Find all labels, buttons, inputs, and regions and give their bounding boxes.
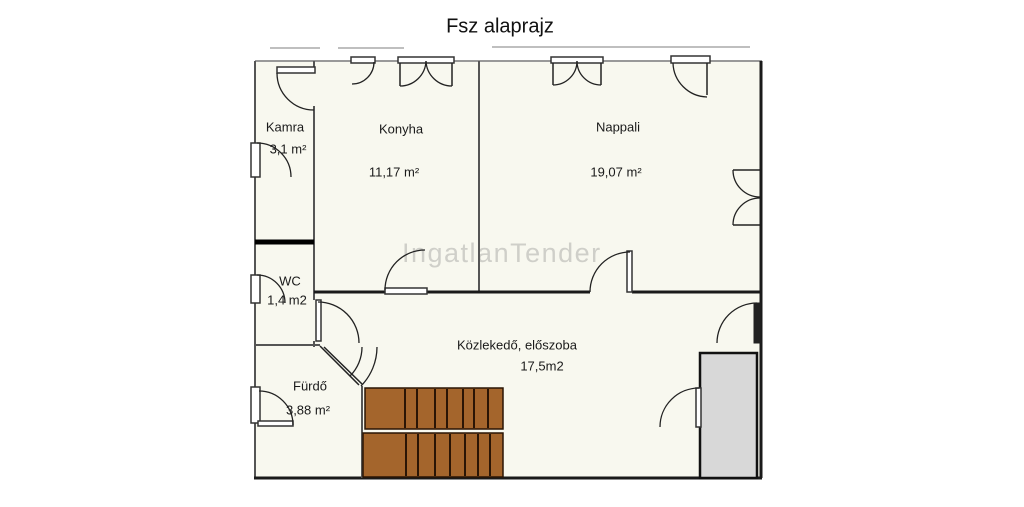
door-arcs	[257, 61, 760, 427]
window-symbols	[251, 56, 760, 427]
floorplan-drawing	[0, 0, 1024, 507]
stairs	[363, 388, 503, 477]
interior-walls	[255, 61, 761, 478]
room-area-wc: 1,4 m2	[267, 293, 307, 308]
room-area-nappali: 19,07 m²	[590, 165, 641, 180]
room-label-kozlekedo: Közlekedő, előszoba	[457, 338, 577, 353]
room-label-kamra: Kamra	[266, 120, 304, 135]
page-title: Fsz alaprajz	[446, 16, 554, 39]
room-label-nappali: Nappali	[596, 120, 640, 135]
room-area-kozlekedo: 17,5m2	[520, 359, 563, 374]
room-label-konyha: Konyha	[379, 122, 423, 137]
floorplan-page: Fsz alaprajz IngatlanTender	[0, 0, 1024, 507]
room-area-furdo: 3,88 m²	[286, 403, 330, 418]
exterior-ticks	[270, 47, 750, 48]
outer-walls	[254, 61, 762, 479]
room-label-furdo: Fürdő	[293, 379, 327, 394]
room-area-kamra: 3,1 m²	[270, 142, 307, 157]
terrace-block	[700, 353, 757, 478]
room-area-konyha: 11,17 m²	[369, 165, 419, 180]
room-label-wc: WC	[279, 274, 301, 289]
